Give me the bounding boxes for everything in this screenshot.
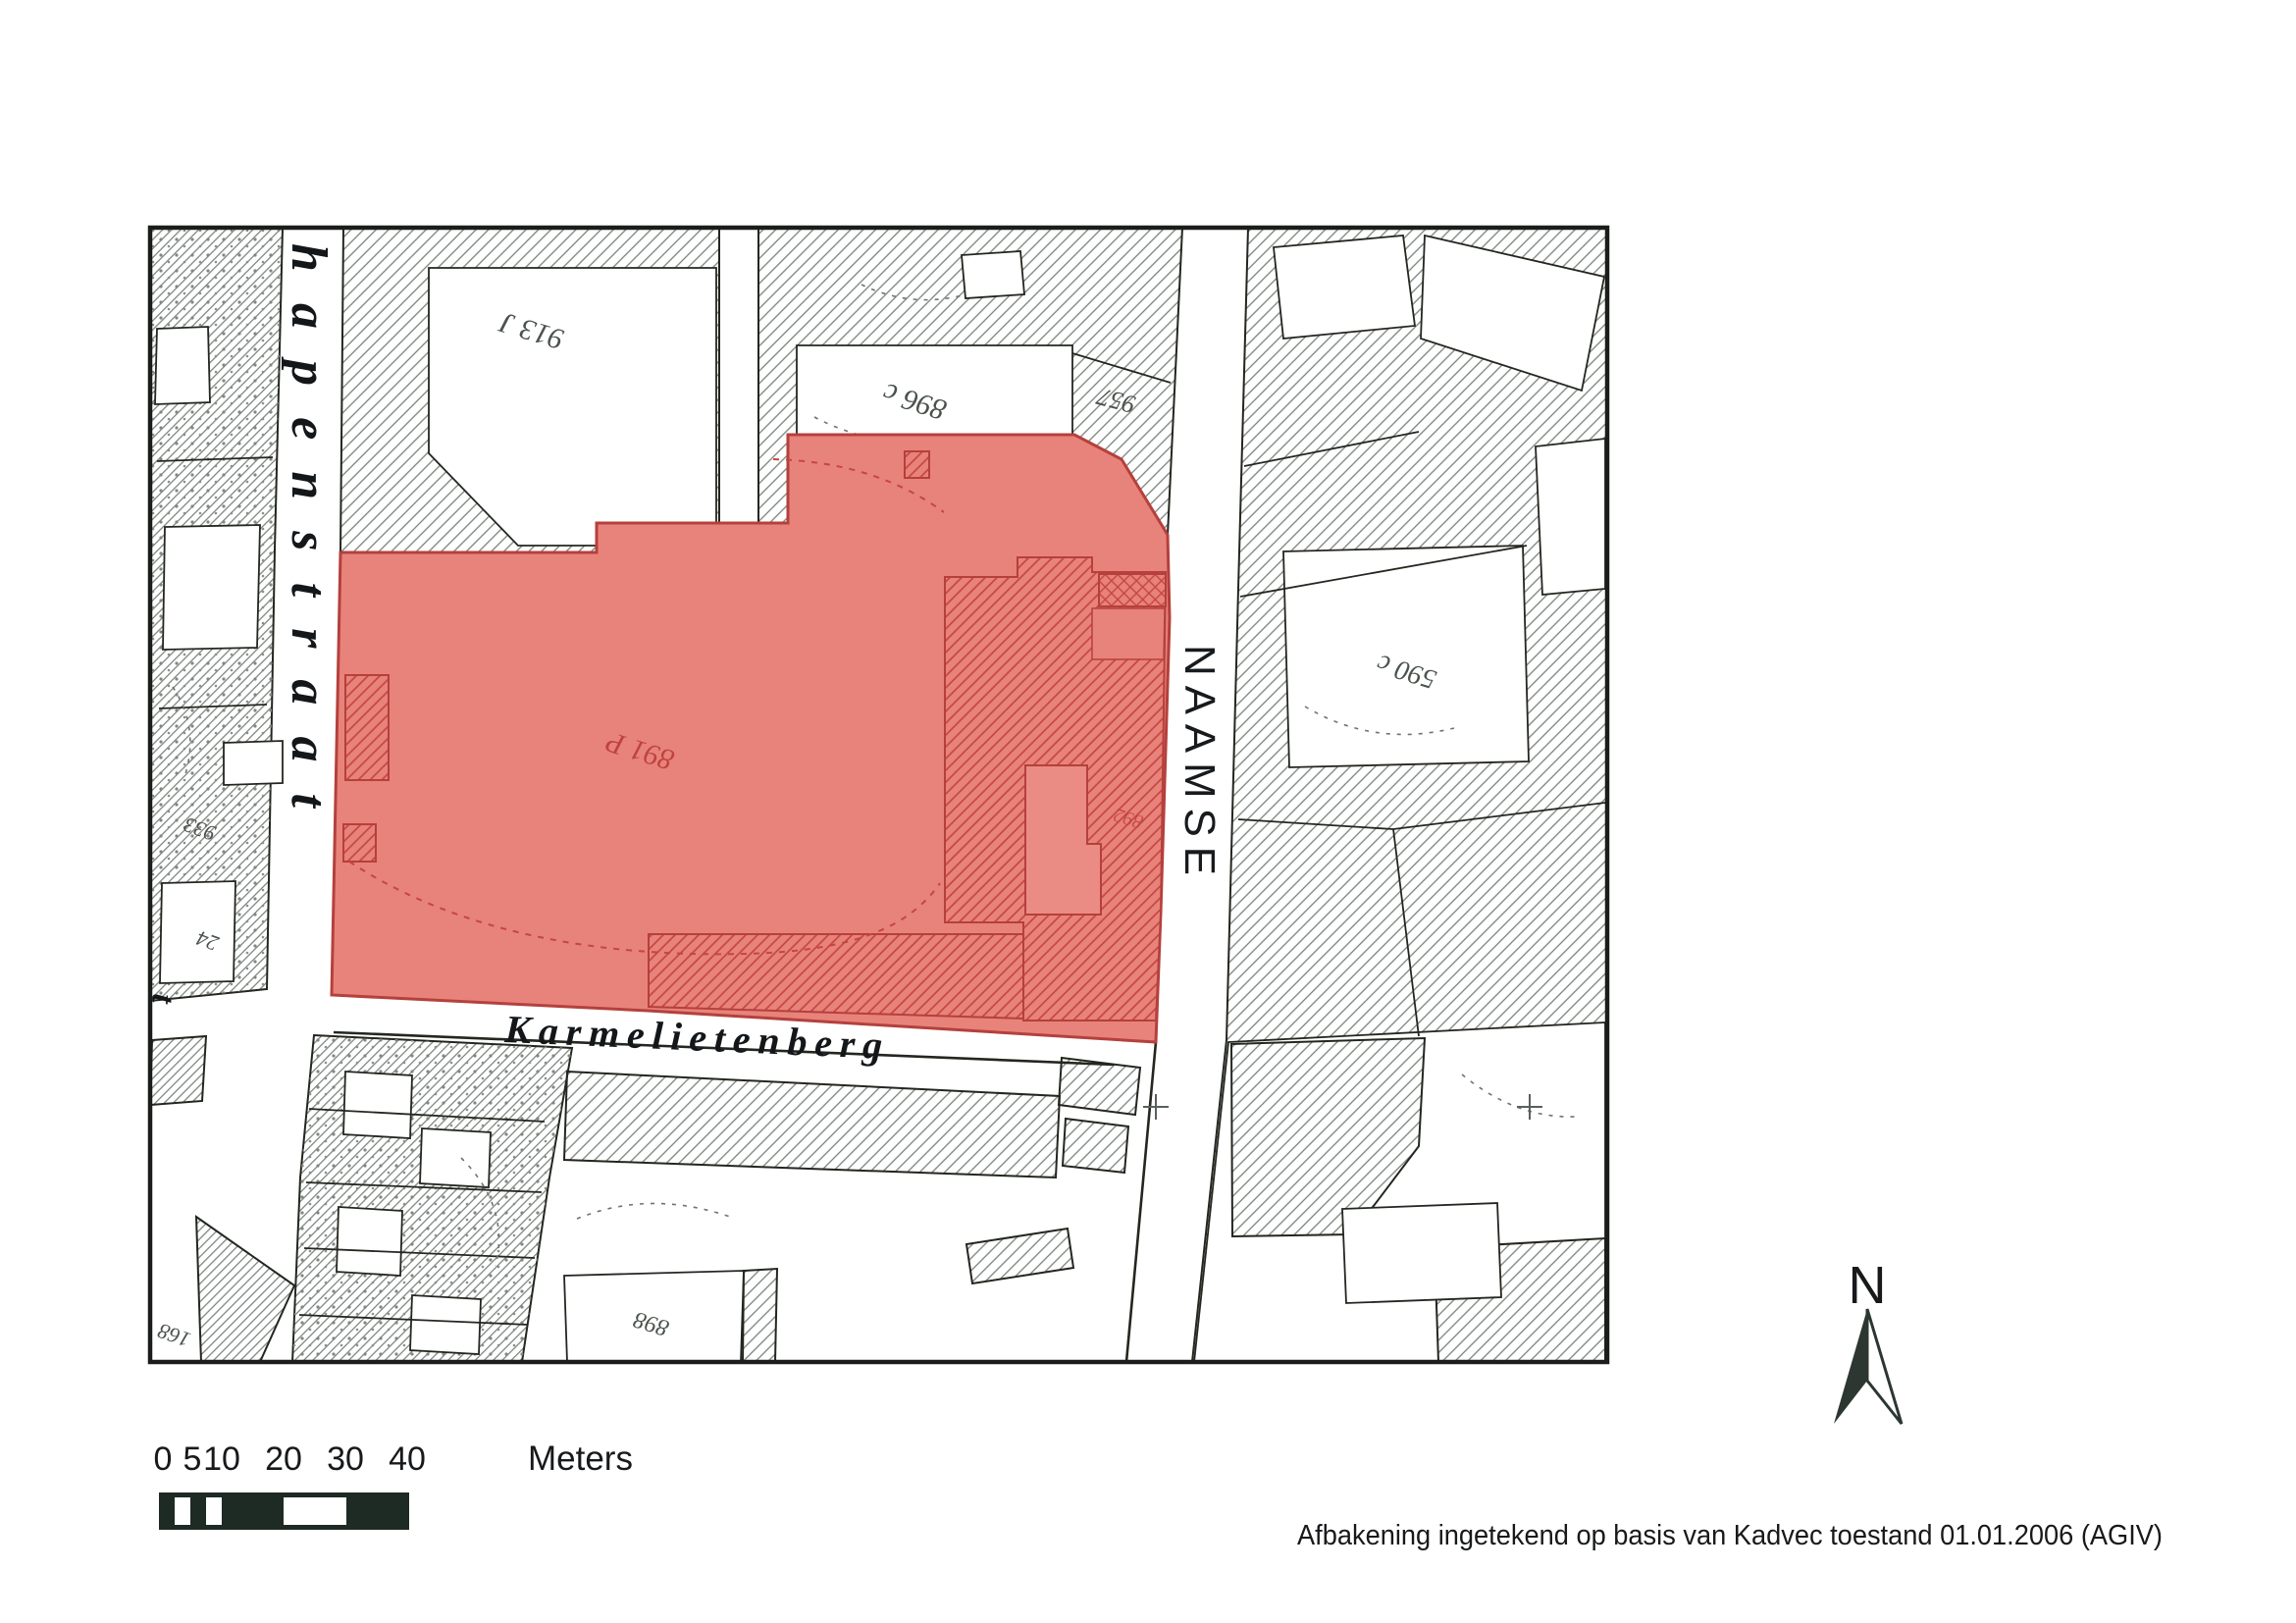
parcel-white [160, 881, 235, 983]
scale-unit-label: Meters [528, 1440, 633, 1478]
block-east [1192, 228, 1607, 1362]
parcel-dashed-boundary [577, 1203, 730, 1219]
building-hatched [743, 1269, 777, 1362]
north-arrow: N [1834, 1256, 1902, 1424]
street-label-schapenstraat: hapenstraat [281, 243, 337, 810]
parcel-white [420, 1128, 491, 1187]
block-north-west [340, 228, 719, 552]
scale-bar: 0 5 10 20 30 40 Meters [154, 1440, 633, 1530]
building-white [1342, 1203, 1501, 1303]
scale-bar-segment [284, 1497, 346, 1525]
survey-cross [1143, 1094, 1169, 1120]
highlight-building [343, 824, 376, 862]
scale-tick-5: 5 [183, 1440, 202, 1478]
highlight-courtyard [1092, 608, 1165, 659]
scale-bar-segment [206, 1497, 222, 1525]
street-label-naamsestraat: NAAMSE [1175, 645, 1224, 875]
city-block [150, 1036, 206, 1105]
city-block [196, 1217, 294, 1362]
parcel-white [343, 1072, 412, 1138]
parcel-white [337, 1207, 402, 1276]
parcel-label-168: 168 [155, 1319, 194, 1353]
north-arrow-label: N [1849, 1256, 1887, 1315]
scanned-map-page: hapenstraat Karmelietenberg NAAMSE t 913… [0, 0, 2296, 1623]
parcel-white [410, 1295, 481, 1354]
parcel-white [962, 251, 1024, 298]
building-hatched-band [564, 1072, 1060, 1178]
scale-tick-30: 30 [327, 1440, 364, 1478]
building-hatched [966, 1229, 1073, 1283]
scale-tick-40: 40 [389, 1440, 426, 1478]
highlight-building-crossed [1099, 574, 1166, 606]
map-document: hapenstraat Karmelietenberg NAAMSE t 913… [0, 0, 2296, 1623]
block-west [150, 228, 283, 1001]
scale-tick-20: 20 [265, 1440, 302, 1478]
parcel-white [163, 525, 260, 650]
block-south-west [150, 1035, 572, 1362]
north-arrow-right-wing [1867, 1309, 1902, 1424]
parcel-white [1536, 439, 1605, 595]
map-caption: Afbakening ingetekend op basis van Kadve… [1297, 1520, 2163, 1551]
building-hatched [1059, 1058, 1140, 1115]
highlight-building-band [649, 934, 1023, 1019]
highlight-building [905, 451, 929, 478]
scale-tick-0: 0 [154, 1440, 173, 1478]
parcel-white [1274, 236, 1415, 339]
building-hatched [1063, 1119, 1128, 1173]
scale-tick-10: 10 [203, 1440, 240, 1478]
map-canvas: hapenstraat Karmelietenberg NAAMSE t 913… [144, 228, 1607, 1362]
parcel-white [155, 327, 210, 404]
highlight-building [345, 675, 389, 780]
scale-bar-segment [175, 1497, 190, 1525]
north-arrow-left-wing [1834, 1309, 1867, 1424]
parcel-white [224, 741, 283, 785]
